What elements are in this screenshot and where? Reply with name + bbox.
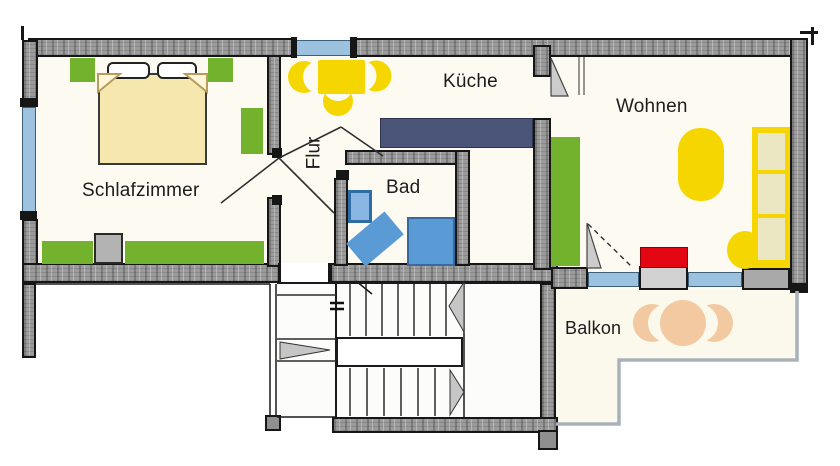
dresser: [94, 233, 123, 264]
window-top: [295, 40, 353, 56]
wall-living-bottom-stub: [551, 267, 588, 289]
floor-plan: Schlafzimmer Flur Küche Bad Wohnen Balko…: [0, 0, 840, 466]
bath-sink: [348, 190, 372, 223]
wall-stairwell-right: [540, 283, 556, 433]
living-cabinet: [551, 137, 580, 266]
window-post-left: [291, 37, 297, 58]
wall-bedroom-hall-upper: [267, 55, 281, 155]
sketch-tick-top-right-h: [800, 31, 818, 34]
wall-cap-right-bottom: [790, 283, 808, 293]
wall-left-upper: [22, 40, 38, 107]
room-label-bad: Bad: [386, 177, 420, 199]
bath-wall-cap: [336, 170, 349, 180]
wall-bath-top: [345, 150, 470, 165]
sketch-tick-top-right-v: [811, 27, 814, 45]
window-left: [22, 107, 36, 212]
wardrobe-right: [125, 241, 264, 264]
window-post-right: [350, 37, 357, 58]
room-label-kueche: Küche: [443, 71, 498, 93]
stair-wall-cap: [265, 415, 281, 431]
bed: [98, 73, 207, 165]
sketch-tick-top-left: [21, 26, 24, 40]
wall-right: [790, 38, 808, 293]
wall-left-stub: [22, 283, 36, 358]
wall-bottom-bedroom: [22, 263, 281, 283]
window-living-right: [688, 272, 742, 287]
sofa-cushion-3: [758, 218, 785, 260]
tv-sideboard: [640, 247, 688, 268]
balcony-floor-deep: [556, 289, 620, 424]
window-cap-lower: [20, 211, 37, 220]
wall-bath-left: [334, 178, 348, 266]
wall-top-right: [353, 38, 808, 57]
wall-top-left: [28, 38, 295, 57]
kitchen-counter: [380, 118, 533, 148]
entrance-jamb-right: [328, 263, 332, 283]
wall-stairwell-bottom: [332, 417, 558, 433]
coffee-table: [678, 128, 724, 201]
pillow-left: [107, 62, 150, 79]
room-label-flur-text: Flur: [303, 137, 325, 170]
wardrobe-left: [42, 241, 93, 264]
wall-bath-right: [455, 150, 470, 266]
room-label-wohnen: Wohnen: [616, 96, 688, 118]
bedroom-shelf: [241, 108, 263, 154]
entrance-opening: [281, 263, 328, 283]
door-hinge-block-lower: [272, 195, 282, 205]
room-label-balkon: Balkon: [565, 318, 621, 339]
wall-kitchen-living-lower: [533, 118, 551, 270]
balcony-door-threshold-right: [742, 268, 790, 290]
wall-bedroom-hall-lower: [267, 197, 281, 267]
window-living-left: [588, 272, 639, 287]
sofa-cushion-2: [758, 174, 785, 214]
pillow-right: [157, 62, 197, 79]
door-hinge-block-upper: [272, 148, 282, 158]
balcony-door-threshold: [639, 266, 688, 290]
nightstand-left: [70, 58, 95, 82]
balcony-wall-cap: [538, 430, 558, 450]
room-label-schlafzimmer: Schlafzimmer: [82, 180, 199, 202]
wall-kitchen-living-upper: [533, 45, 551, 77]
window-cap-upper: [20, 98, 37, 107]
room-label-flur: Flur: [292, 127, 336, 179]
shower: [407, 217, 455, 266]
sofa-cushion-1: [758, 133, 785, 170]
stairwell-floor: [277, 283, 540, 417]
nightstand-right: [208, 58, 233, 82]
